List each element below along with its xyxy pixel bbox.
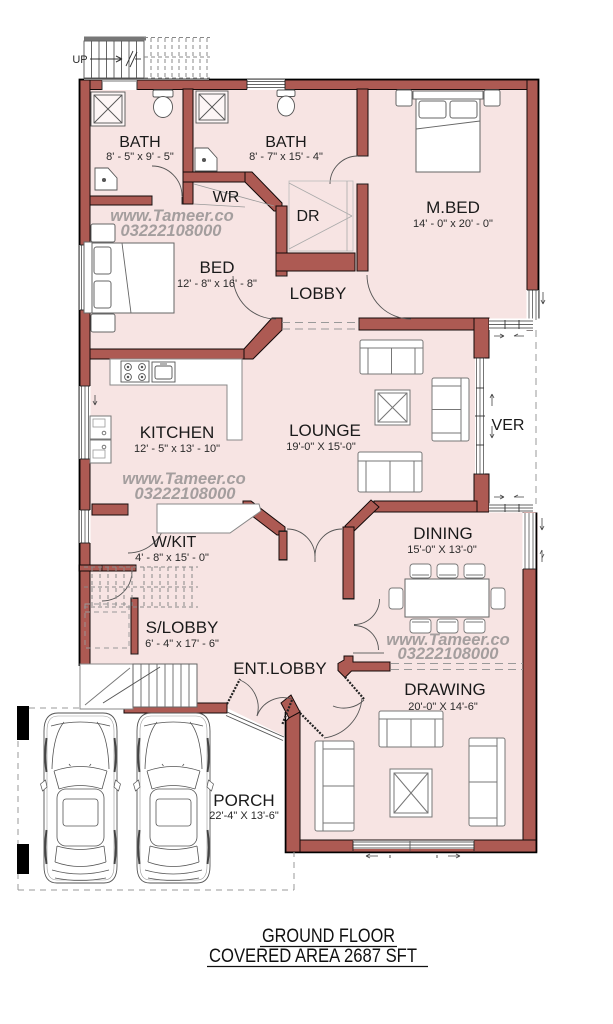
- svg-text:PORCH: PORCH: [213, 791, 274, 810]
- svg-text:03222108000: 03222108000: [135, 485, 237, 503]
- svg-text:20'-0" X 14'-6": 20'-0" X 14'-6": [408, 701, 478, 713]
- svg-text:S/LOBBY: S/LOBBY: [146, 618, 219, 637]
- svg-text:DR: DR: [296, 208, 319, 225]
- svg-text:4' - 8" x 15' - 0": 4' - 8" x 15' - 0": [135, 552, 209, 564]
- svg-text:6' - 4" x 17' - 6": 6' - 4" x 17' - 6": [145, 638, 219, 650]
- svg-text:UP: UP: [72, 54, 87, 66]
- svg-text:LOUNGE: LOUNGE: [289, 421, 361, 440]
- svg-text:ENT.LOBBY: ENT.LOBBY: [233, 659, 327, 678]
- svg-text:03222108000: 03222108000: [398, 645, 500, 663]
- svg-text:DINING: DINING: [413, 524, 473, 543]
- svg-text:BATH: BATH: [119, 134, 160, 151]
- svg-text:KITCHEN: KITCHEN: [140, 423, 215, 442]
- svg-text:COVERED AREA 2687 SFT: COVERED AREA 2687 SFT: [209, 945, 417, 967]
- svg-text:14' - 0" x 20' - 0": 14' - 0" x 20' - 0": [413, 218, 493, 230]
- svg-text:DRAWING: DRAWING: [404, 680, 486, 699]
- svg-text:15'-0" X 13'-0": 15'-0" X 13'-0": [407, 544, 477, 556]
- svg-text:19'-0" X 15'-0": 19'-0" X 15'-0": [286, 441, 356, 453]
- svg-text:W/KIT: W/KIT: [152, 534, 197, 551]
- svg-text:WR: WR: [213, 189, 240, 206]
- svg-text:12' - 8" x 16' - 8": 12' - 8" x 16' - 8": [177, 278, 257, 290]
- svg-text:22'-4" X 13'-6": 22'-4" X 13'-6": [209, 810, 279, 822]
- svg-text:12' - 5" x 13' - 10": 12' - 5" x 13' - 10": [134, 443, 220, 455]
- svg-text:GROUND FLOOR: GROUND FLOOR: [262, 925, 395, 947]
- svg-text:BATH: BATH: [265, 134, 306, 151]
- svg-text:BED: BED: [200, 258, 235, 277]
- svg-text:M.BED: M.BED: [426, 198, 480, 217]
- svg-text:03222108000: 03222108000: [121, 222, 223, 240]
- svg-text:8' - 5" x 9' - 5": 8' - 5" x 9' - 5": [106, 151, 174, 163]
- svg-text:8' - 7" x 15' - 4": 8' - 7" x 15' - 4": [249, 151, 323, 163]
- svg-text:VER: VER: [492, 417, 525, 434]
- svg-text:LOBBY: LOBBY: [290, 284, 347, 303]
